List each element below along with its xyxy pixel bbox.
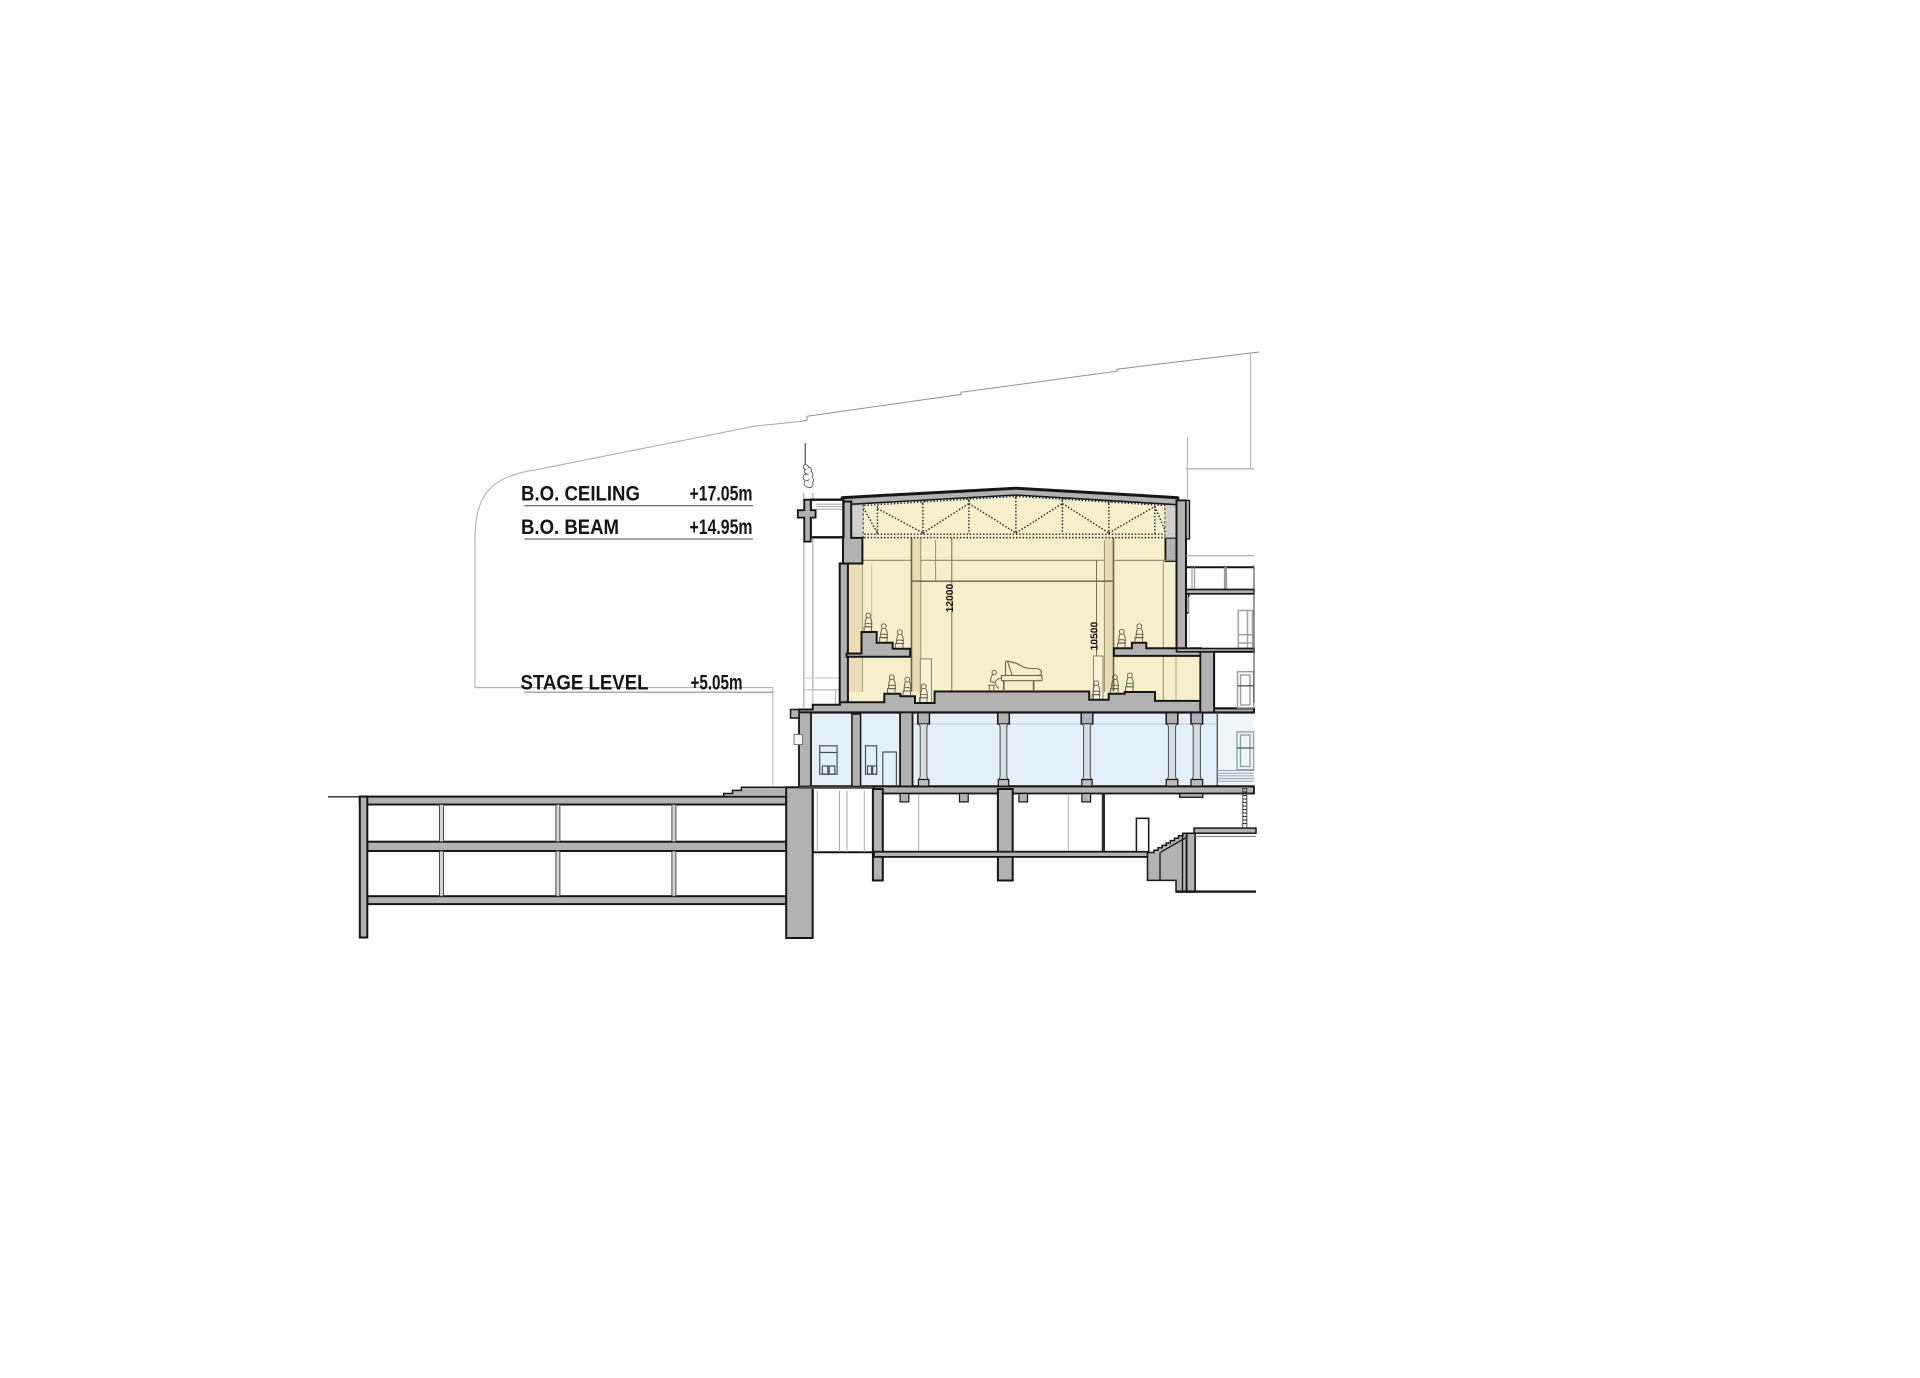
svg-text:STAGE LEVEL: STAGE LEVEL: [521, 670, 649, 694]
svg-text:+14.95m: +14.95m: [690, 515, 753, 539]
svg-text:12000: 12000: [945, 583, 956, 612]
svg-text:B.O. CEILING: B.O. CEILING: [521, 482, 640, 506]
svg-text:B.O. BEAM: B.O. BEAM: [521, 515, 619, 539]
svg-text:10500: 10500: [1090, 621, 1101, 650]
svg-text:+17.05m: +17.05m: [690, 482, 753, 506]
svg-text:+5.05m: +5.05m: [691, 670, 743, 694]
